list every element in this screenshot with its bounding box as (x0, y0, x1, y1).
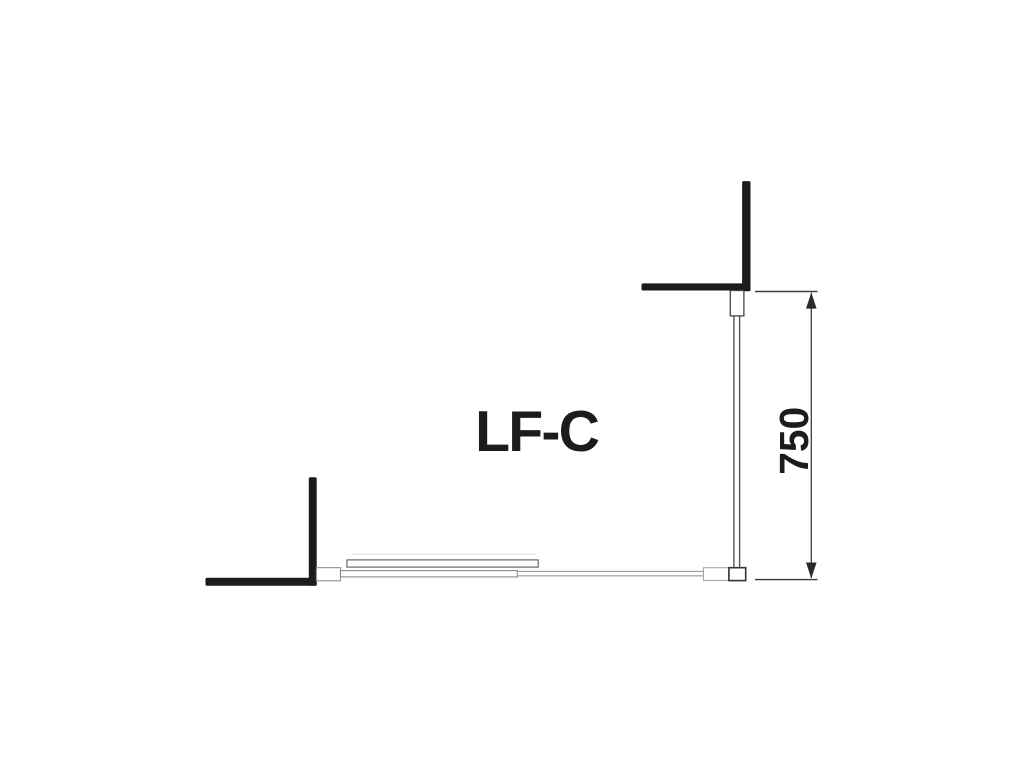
svg-text:750: 750 (771, 407, 817, 475)
svg-text:LF-C: LF-C (475, 400, 599, 464)
